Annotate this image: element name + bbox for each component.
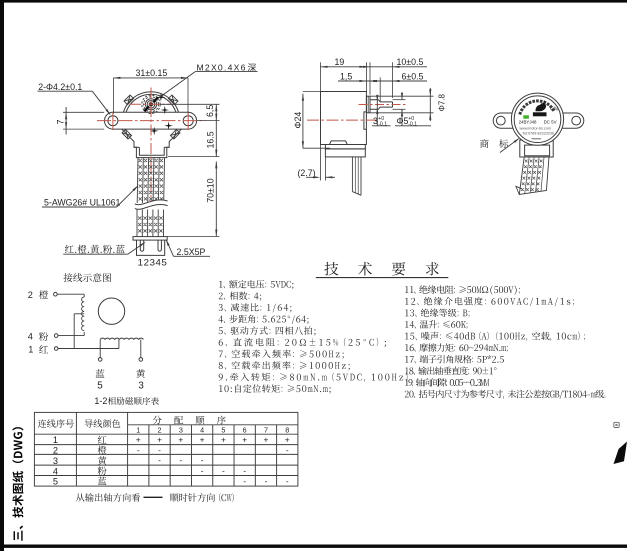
svg-text:3: 3 <box>179 426 183 435</box>
svg-text:-: - <box>243 476 246 486</box>
svg-text:6,5: 6,5 <box>205 105 215 117</box>
svg-text:1: 1 <box>53 435 58 445</box>
svg-text:1: 1 <box>28 345 33 355</box>
svg-text:-: - <box>201 455 204 465</box>
svg-text:5: 5 <box>97 380 103 391</box>
svg-text:7: 7 <box>264 426 268 435</box>
svg-text:70±10: 70±10 <box>205 178 215 203</box>
svg-text:Φ24: Φ24 <box>293 112 303 129</box>
svg-text:Tel:0769-82323236: Tel:0769-82323236 <box>522 132 554 136</box>
svg-text:12345: 12345 <box>138 258 168 269</box>
svg-text:-: - <box>201 466 204 476</box>
svg-text:6±0.5: 6±0.5 <box>402 71 424 81</box>
svg-text:31±0.15: 31±0.15 <box>136 68 168 78</box>
svg-text:Φ5: Φ5 <box>397 116 409 126</box>
svg-text:4: 4 <box>28 332 33 342</box>
svg-text:www.motor-bs.com: www.motor-bs.com <box>520 126 551 130</box>
svg-text:GM: GM <box>550 107 558 113</box>
svg-text:-: - <box>158 445 161 455</box>
svg-text:M2X0.4X6: M2X0.4X6 <box>197 62 247 72</box>
svg-text:-: - <box>137 445 140 455</box>
svg-text:4: 4 <box>53 466 58 476</box>
svg-text:DC 5V: DC 5V <box>544 119 557 124</box>
svg-text:+: + <box>157 435 162 445</box>
svg-text:4: 4 <box>200 426 204 435</box>
svg-text:+: + <box>264 435 269 445</box>
svg-text:-: - <box>286 476 289 486</box>
svg-text:1: 1 <box>136 426 140 435</box>
svg-text:-: - <box>179 455 182 465</box>
svg-text:8: 8 <box>285 426 289 435</box>
svg-text:2-Φ4.2±0.1: 2-Φ4.2±0.1 <box>38 82 82 92</box>
svg-text:24BYJ48: 24BYJ48 <box>519 119 537 124</box>
svg-text:-: - <box>286 445 289 455</box>
svg-text:5: 5 <box>53 477 58 487</box>
svg-text:3: 3 <box>138 380 144 391</box>
svg-text:10±0.5: 10±0.5 <box>397 57 424 67</box>
svg-text:+: + <box>200 435 205 445</box>
svg-text:-: - <box>265 476 268 486</box>
svg-text:2: 2 <box>28 290 33 300</box>
svg-text:+: + <box>242 435 247 445</box>
svg-text:1,5: 1,5 <box>340 71 352 81</box>
svg-text:+: + <box>221 435 226 445</box>
svg-text:1-2: 1-2 <box>94 396 107 406</box>
svg-text:3: 3 <box>53 456 58 466</box>
svg-text:-0.1: -0.1 <box>378 121 387 127</box>
svg-text:-0.1: -0.1 <box>408 121 417 127</box>
svg-text:2.5X5P: 2.5X5P <box>177 247 206 257</box>
svg-text:16.5: 16.5 <box>205 131 215 148</box>
svg-text:7: 7 <box>56 120 66 125</box>
svg-text:(2.7): (2.7) <box>298 168 316 178</box>
svg-text:-: - <box>243 466 246 476</box>
svg-text:+: + <box>285 435 290 445</box>
svg-text:5: 5 <box>221 426 225 435</box>
svg-text:Φ7.8: Φ7.8 <box>438 93 447 111</box>
svg-text:6: 6 <box>243 426 247 435</box>
svg-text:+: + <box>136 435 141 445</box>
svg-text:+: + <box>178 435 183 445</box>
svg-text:2: 2 <box>53 445 58 455</box>
svg-text:-: - <box>222 466 225 476</box>
svg-text:19: 19 <box>335 57 345 67</box>
svg-text:5-AWG26# UL1061: 5-AWG26# UL1061 <box>44 198 121 208</box>
svg-text:-: - <box>158 455 161 465</box>
svg-text:2: 2 <box>158 426 162 435</box>
